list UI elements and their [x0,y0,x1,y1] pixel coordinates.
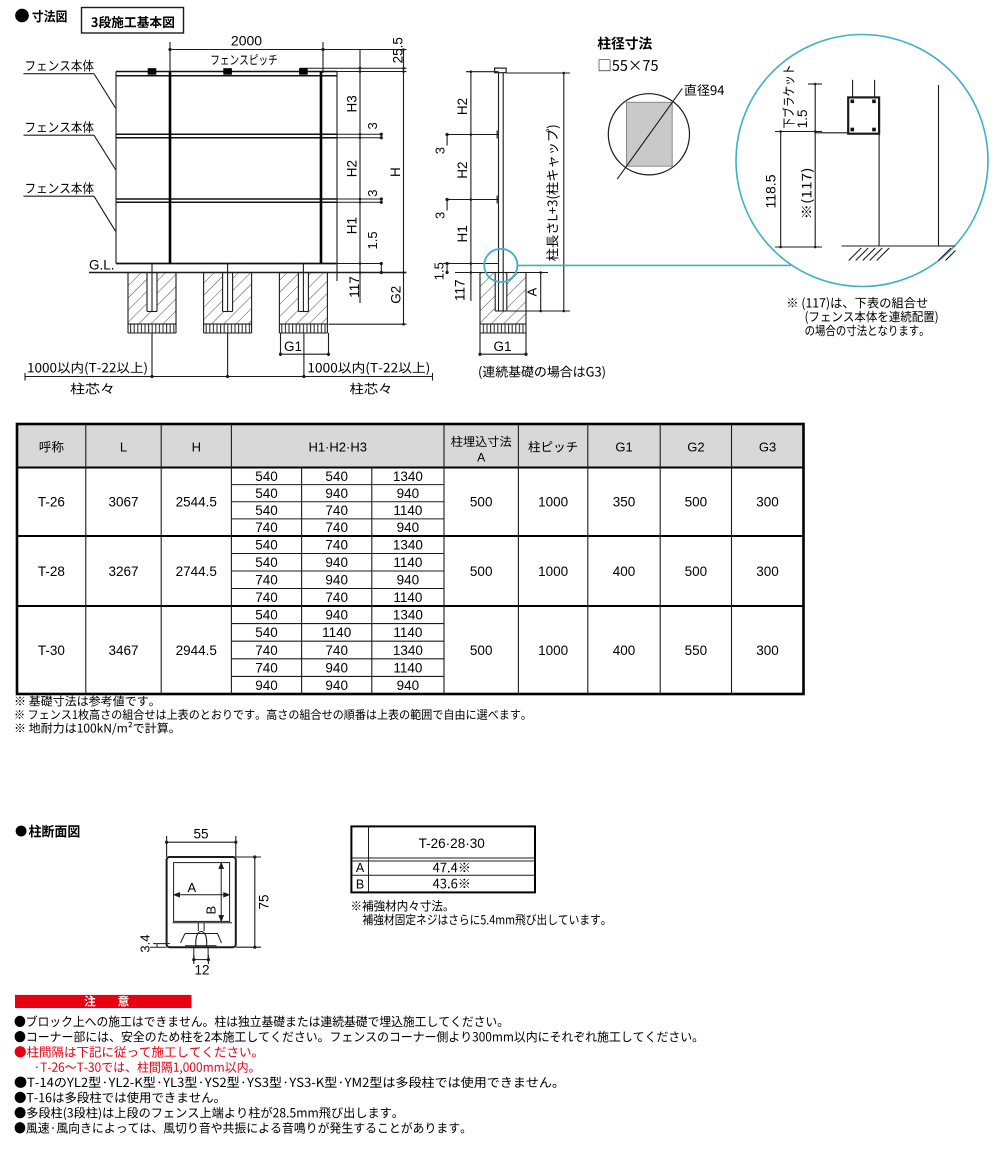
svg-text:B: B [356,878,364,892]
svg-text:540: 540 [255,555,278,570]
svg-text:L: L [120,440,127,455]
svg-text:940: 940 [325,608,348,623]
svg-text:300: 300 [756,495,779,510]
svg-text:2544.5: 2544.5 [176,495,217,510]
svg-text:1140: 1140 [393,590,422,605]
svg-text:T-30: T-30 [38,643,65,658]
svg-text:540: 540 [255,486,278,501]
svg-text:A: A [356,861,365,875]
svg-text:H2: H2 [455,98,470,115]
svg-text:G1: G1 [615,440,632,455]
svg-text:117: 117 [347,276,362,298]
svg-text:1340: 1340 [393,538,423,553]
svg-text:540: 540 [255,469,278,484]
svg-text:3: 3 [432,212,447,219]
svg-text:300: 300 [756,564,779,579]
svg-text:350: 350 [613,495,636,510]
svg-text:B: B [204,906,219,915]
svg-text:940: 940 [397,520,420,535]
svg-text:740: 740 [325,538,348,553]
svg-text:3267: 3267 [108,564,138,579]
svg-text:1.5: 1.5 [365,231,380,249]
svg-text:740: 740 [325,643,348,658]
svg-text:H: H [388,167,403,177]
svg-text:940: 940 [397,486,420,501]
svg-text:H3: H3 [345,95,360,112]
svg-text:500: 500 [470,564,493,579]
svg-text:740: 740 [325,503,348,518]
svg-text:H2: H2 [345,160,360,177]
svg-text:1140: 1140 [393,625,422,640]
svg-text:1140: 1140 [393,555,422,570]
svg-text:740: 740 [255,643,278,658]
svg-text:500: 500 [685,495,708,510]
svg-text:T-26: T-26 [38,495,65,510]
svg-text:3.4: 3.4 [138,935,153,953]
svg-text:540: 540 [255,608,278,623]
svg-text:1.5: 1.5 [795,109,810,128]
svg-text:H2: H2 [455,162,470,179]
svg-text:540: 540 [325,469,348,484]
svg-text:940: 940 [397,573,420,588]
svg-text:940: 940 [325,573,348,588]
svg-text:12: 12 [194,963,209,978]
svg-text:1.5: 1.5 [432,262,447,280]
svg-text:T-28: T-28 [38,564,65,579]
svg-text:940: 940 [325,555,348,570]
svg-text:A: A [187,880,196,895]
svg-text:2744.5: 2744.5 [176,564,217,579]
svg-text:540: 540 [255,625,278,640]
svg-text:G1: G1 [284,339,302,354]
svg-text:400: 400 [613,643,636,658]
svg-text:1340: 1340 [393,469,423,484]
svg-text:540: 540 [255,503,278,518]
svg-text:A: A [477,451,486,465]
svg-text:740: 740 [255,660,278,675]
svg-text:940: 940 [325,660,348,675]
svg-text:3467: 3467 [108,643,138,658]
svg-text:75: 75 [257,894,272,909]
svg-text:3: 3 [432,147,447,154]
svg-text:3: 3 [365,122,380,129]
svg-text:H1: H1 [345,217,360,234]
svg-text:740: 740 [255,573,278,588]
svg-text:500: 500 [470,495,493,510]
svg-text:1140: 1140 [393,660,422,675]
svg-text:740: 740 [255,590,278,605]
svg-text:H: H [192,440,201,455]
svg-text:300: 300 [756,643,779,658]
svg-text:740: 740 [255,520,278,535]
svg-text:940: 940 [325,678,348,693]
svg-text:55: 55 [193,827,208,842]
svg-text:A: A [525,287,540,296]
svg-text:400: 400 [613,564,636,579]
svg-text:G2: G2 [687,440,704,455]
svg-text:740: 740 [325,520,348,535]
svg-text:H1: H1 [455,225,470,242]
svg-text:1140: 1140 [322,625,351,640]
svg-text:1340: 1340 [393,608,423,623]
svg-text:G.L.: G.L. [89,258,115,273]
svg-text:1000: 1000 [538,495,568,510]
svg-text:1140: 1140 [393,503,422,518]
svg-text:940: 940 [397,678,420,693]
svg-text:940: 940 [325,486,348,501]
svg-text:1000: 1000 [538,643,568,658]
svg-text:G3: G3 [759,440,776,455]
svg-text:25.5: 25.5 [391,37,406,63]
svg-text:2944.5: 2944.5 [176,643,217,658]
svg-text:740: 740 [325,590,348,605]
svg-text:118.5: 118.5 [762,174,778,208]
svg-text:117: 117 [453,279,468,301]
svg-text:500: 500 [685,564,708,579]
svg-text:540: 540 [255,538,278,553]
svg-text:500: 500 [470,643,493,658]
svg-text:940: 940 [255,678,278,693]
svg-text:3067: 3067 [108,495,138,510]
svg-text:G1: G1 [493,339,511,354]
svg-text:1000: 1000 [538,564,568,579]
svg-text:3: 3 [365,190,380,197]
svg-text:550: 550 [685,643,708,658]
svg-text:1340: 1340 [393,643,423,658]
svg-text:T-26·28·30: T-26·28·30 [419,836,485,851]
svg-text:2000: 2000 [231,33,262,49]
svg-text:H1·H2·H3: H1·H2·H3 [308,440,367,455]
svg-text:G2: G2 [388,286,403,304]
